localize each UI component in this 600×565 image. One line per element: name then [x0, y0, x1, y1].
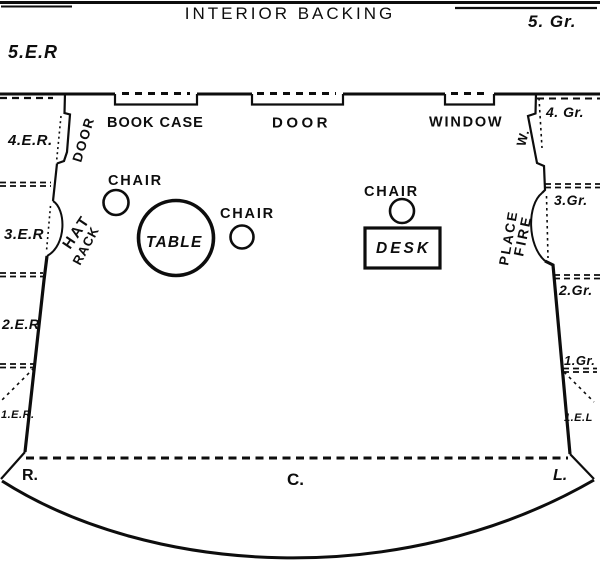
svg-text:1.E.R.: 1.E.R.	[1, 409, 35, 421]
svg-text:CHAIR: CHAIR	[108, 173, 163, 189]
svg-text:4. Gr.: 4. Gr.	[545, 104, 584, 120]
svg-text:5.E.R: 5.E.R	[8, 42, 58, 62]
svg-text:L.: L.	[553, 467, 567, 484]
svg-text:CHAIR: CHAIR	[220, 206, 275, 222]
svg-text:1.Gr.: 1.Gr.	[564, 353, 595, 368]
svg-text:DOOR: DOOR	[272, 115, 331, 132]
svg-text:3.E.R: 3.E.R	[4, 226, 44, 243]
svg-text:DESK: DESK	[376, 240, 431, 257]
svg-text:2.Gr.: 2.Gr.	[558, 282, 593, 298]
svg-text:C.: C.	[287, 470, 304, 489]
svg-text:BOOK CASE: BOOK CASE	[107, 115, 204, 131]
svg-text:TABLE: TABLE	[146, 234, 203, 251]
svg-text:1.E.L: 1.E.L	[564, 412, 593, 424]
svg-text:4.E.R.: 4.E.R.	[7, 132, 53, 149]
svg-text:2.E.R: 2.E.R	[1, 316, 40, 332]
svg-text:INTERIOR BACKING: INTERIOR BACKING	[185, 4, 395, 23]
svg-text:CHAIR: CHAIR	[364, 184, 419, 200]
svg-text:R.: R.	[22, 467, 38, 484]
svg-text:W.: W.	[513, 127, 532, 147]
svg-text:WINDOW: WINDOW	[429, 115, 503, 131]
svg-text:5. Gr.: 5. Gr.	[528, 12, 577, 31]
svg-text:DOOR: DOOR	[70, 115, 98, 164]
svg-text:3.Gr.: 3.Gr.	[554, 192, 588, 208]
